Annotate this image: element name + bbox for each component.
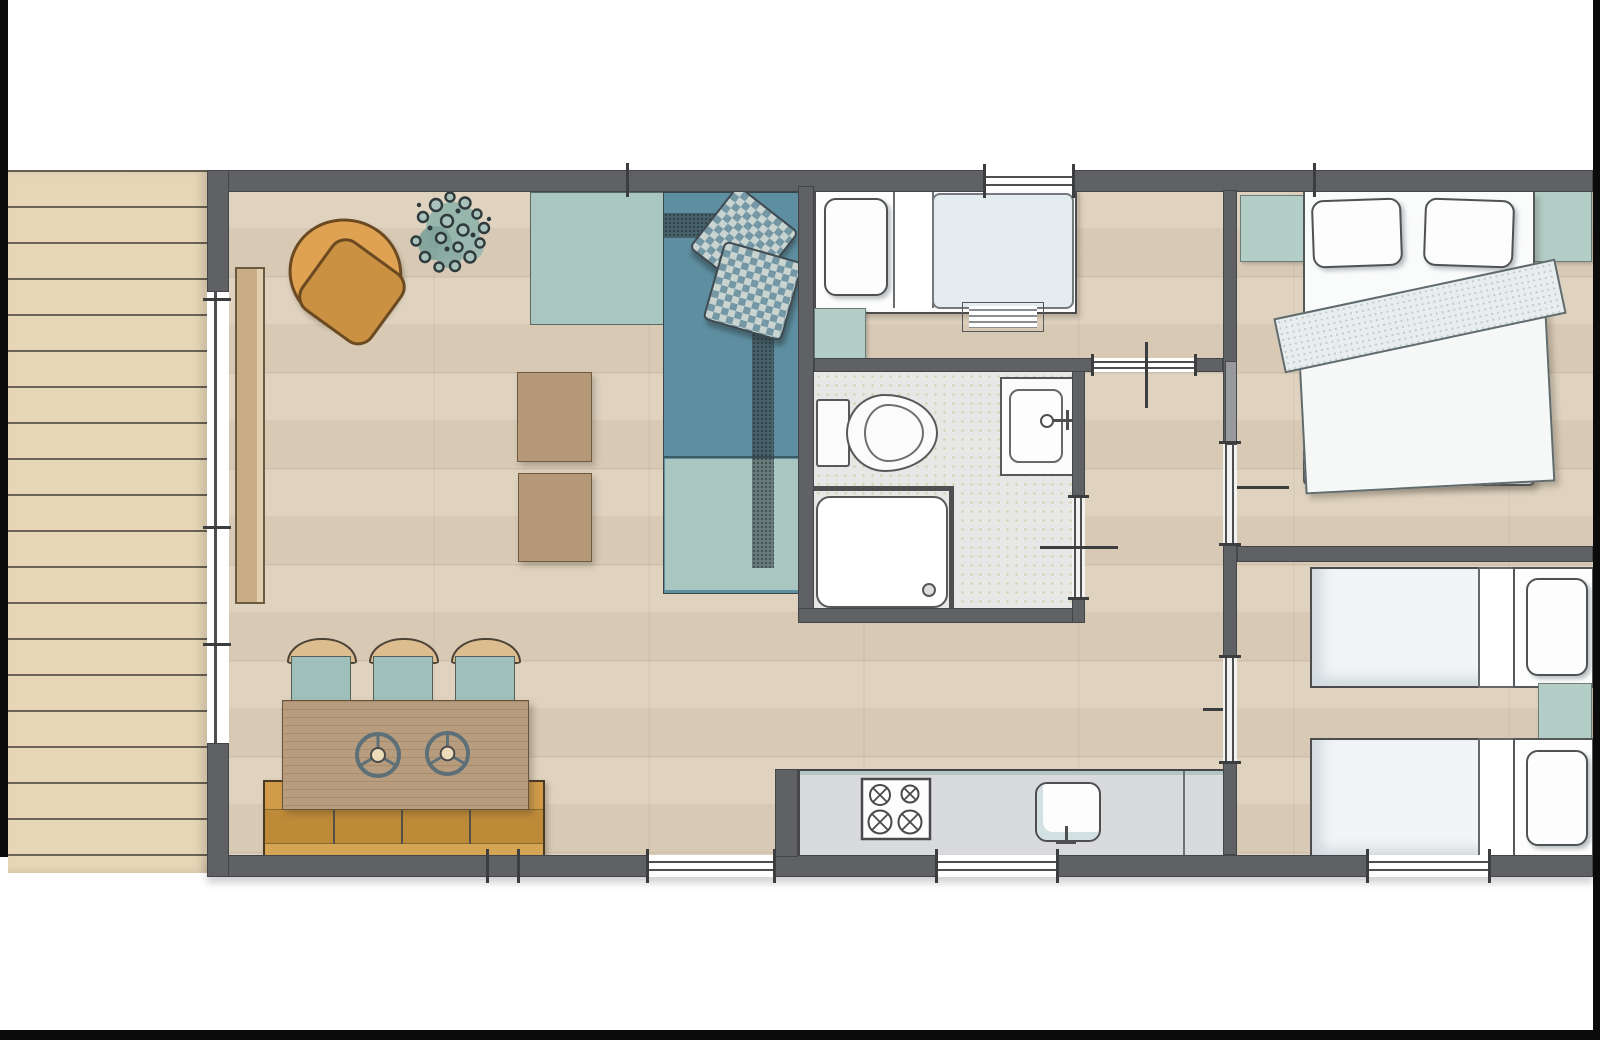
window-cap: [1488, 849, 1491, 883]
door-track-mark: [1040, 546, 1118, 549]
door-handle-mark: [1237, 486, 1289, 489]
door-tick: [203, 643, 231, 646]
table-trivet-1: [354, 731, 402, 779]
frame-bottom: [0, 1030, 1600, 1040]
wall-joint-tick: [1313, 163, 1316, 197]
potted-plant: [403, 183, 505, 285]
master-nightstand-left: [1240, 195, 1305, 262]
twin-nightstand: [1538, 683, 1592, 740]
wall-joint-tick: [486, 849, 489, 883]
window-cap: [983, 164, 986, 198]
window-cap: [646, 849, 649, 883]
wall-left-lower: [207, 743, 229, 877]
door-handle-mark: [1203, 708, 1223, 711]
shower-drain: [922, 583, 936, 597]
luggage-rack: [962, 302, 1044, 332]
frame-right: [1593, 0, 1600, 1040]
floor-plan: [0, 0, 1600, 1040]
window-cap: [1056, 849, 1059, 883]
wall-bathroom-right-lower: [1072, 598, 1085, 623]
frame-left: [0, 0, 8, 857]
twin-bed-2-pillow: [1526, 750, 1588, 846]
wall-bedroom-divider: [1237, 546, 1593, 562]
twin-bed-2-sheet-fold: [1478, 738, 1517, 859]
terrace-deck: [8, 170, 207, 873]
twin-bed-1-pillow: [1526, 578, 1588, 676]
master-pillow-right: [1423, 197, 1515, 268]
door-tick: [1219, 761, 1241, 764]
ottoman-1: [517, 372, 592, 462]
door-tick: [1219, 655, 1241, 658]
master-nightstand-right: [1533, 188, 1592, 262]
master-door-panel: [1225, 361, 1237, 445]
door-tick: [1194, 354, 1197, 376]
door-handle-mark: [1145, 342, 1148, 408]
window-bottom-living: [648, 855, 775, 877]
kitchen-faucet-handle: [1056, 841, 1076, 844]
terrace-door-track: [214, 292, 217, 743]
kitchen-sink: [1035, 782, 1101, 842]
wall-left-upper: [207, 170, 229, 292]
dining-table: [282, 700, 529, 810]
door-tick: [203, 298, 231, 301]
table-trivet-2: [424, 730, 471, 777]
sofa-seat-line: [664, 456, 799, 458]
chair-seat: [373, 656, 433, 704]
dining-chair-3: [451, 638, 517, 702]
door-tick: [1068, 495, 1089, 498]
stove: [860, 777, 932, 841]
window-cap: [773, 849, 776, 883]
wall-bathroom-bottom: [798, 608, 1085, 623]
wall-top: [207, 170, 1593, 192]
door-tick: [1091, 354, 1094, 376]
basin-faucet-knob: [1040, 414, 1054, 428]
toilet-tank: [816, 399, 850, 467]
twin-bed-1-sheet-fold: [1478, 567, 1517, 688]
window-bottom-twin: [1368, 855, 1490, 877]
sofa-chaise: [530, 192, 665, 325]
door-tick: [1068, 597, 1089, 600]
wall-living-bedroom: [798, 186, 814, 623]
wall-joint-tick: [626, 163, 629, 197]
dining-chair-1: [287, 638, 353, 702]
basin-faucet-handle: [1066, 410, 1069, 430]
door-tick: [203, 526, 231, 529]
wall-single-bedroom-stub: [1196, 358, 1223, 372]
chair-seat: [455, 656, 515, 704]
dining-chair-2: [369, 638, 435, 702]
master-door-opening: [1223, 443, 1237, 545]
window-top: [985, 170, 1075, 192]
master-pillow-left: [1311, 197, 1403, 268]
single-bed-sheet-fold: [893, 190, 934, 308]
single-bed-duvet: [932, 193, 1074, 309]
window-cap: [1366, 849, 1369, 883]
sofa-seat-light: [665, 459, 798, 590]
terrace-door-opening: [207, 292, 229, 743]
wall-single-bedroom-bottom: [814, 358, 1094, 372]
window-cap: [935, 849, 938, 883]
ottoman-2: [518, 473, 592, 562]
washbasin: [1009, 389, 1063, 463]
window-bottom-kitchen: [937, 855, 1058, 877]
wall-bathroom-right-upper: [1072, 358, 1085, 498]
twin-door-opening: [1223, 657, 1237, 763]
wall-kitchen-stub: [775, 769, 798, 857]
door-tick: [1219, 441, 1241, 444]
counter-divider: [1183, 771, 1185, 855]
single-bed-pillow: [824, 198, 888, 296]
wall-joint-tick: [517, 849, 520, 883]
window-cap: [1072, 164, 1075, 198]
door-tick: [1219, 543, 1241, 546]
chair-seat: [291, 656, 351, 704]
shower-screen-side: [949, 486, 954, 608]
shower-screen-top: [808, 486, 954, 491]
terrace-door-panel: [235, 267, 265, 604]
single-bedroom-nightstand: [814, 308, 866, 362]
